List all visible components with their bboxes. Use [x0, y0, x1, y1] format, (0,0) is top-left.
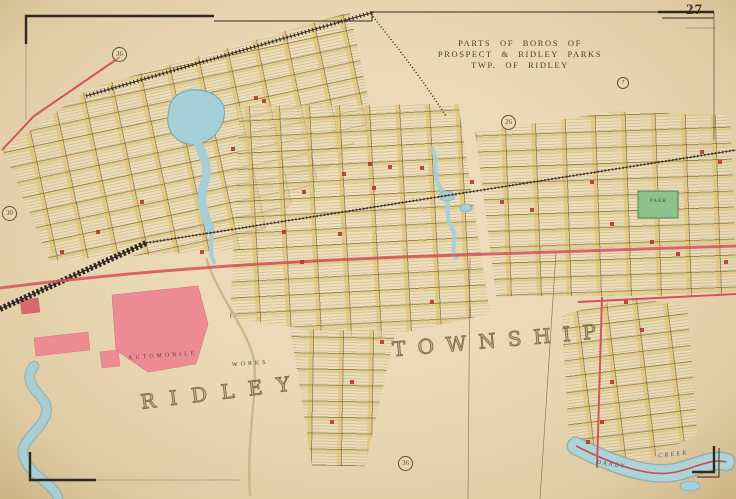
building-marker: [342, 172, 346, 176]
title-line-3: TWP. OF RIDLEY: [414, 60, 626, 71]
plate-number: 27: [686, 2, 703, 19]
building-marker: [640, 328, 644, 332]
building-marker: [254, 96, 258, 100]
building-marker: [368, 162, 372, 166]
building-marker: [380, 340, 384, 344]
building-marker: [650, 240, 654, 244]
building-marker: [600, 420, 604, 424]
building-marker: [420, 166, 424, 170]
factory-parcel: [100, 350, 120, 368]
plate-ref-circle: 36: [112, 47, 127, 62]
red-road-northwest: [2, 57, 120, 150]
chester-pike-red-road: [0, 246, 736, 288]
building-marker: [338, 232, 342, 236]
building-marker: [700, 150, 704, 154]
building-marker: [624, 300, 628, 304]
plate-ref-circle: 36: [398, 456, 413, 471]
building-marker: [200, 250, 204, 254]
building-marker: [231, 147, 235, 151]
railroad-upper: [86, 12, 374, 96]
park-label: PARK: [641, 199, 676, 204]
pond: [168, 90, 225, 144]
building-marker: [302, 190, 306, 194]
building-marker: [282, 230, 286, 234]
building-marker: [96, 230, 100, 234]
plate-ref-circle: 26: [501, 115, 516, 130]
section-line: [468, 258, 470, 499]
building-marker: [718, 160, 722, 164]
neatline-corner-top-left: [26, 16, 214, 44]
map-linework: [0, 0, 736, 499]
neatline-step: [372, 12, 658, 21]
factory-parcel: [34, 332, 90, 356]
building-marker: [610, 380, 614, 384]
building-marker: [470, 180, 474, 184]
section-line: [540, 252, 556, 499]
plate-ref-circle: 30: [2, 206, 17, 221]
building-marker: [300, 260, 304, 264]
marsh-pond: [460, 204, 472, 212]
map-title: PARTS OF BOROS OF PROSPECT & RIDLEY PARK…: [414, 38, 626, 71]
building-marker: [724, 260, 728, 264]
building-marker: [372, 186, 376, 190]
building-marker: [350, 380, 354, 384]
little-creek-center: [432, 148, 456, 258]
building-marker: [590, 180, 594, 184]
creek-from-pond: [198, 144, 210, 228]
small-pond: [680, 481, 700, 491]
atlas-sheet: 27 PARTS OF BOROS OF PROSPECT & RIDLEY P…: [0, 0, 736, 499]
building-marker: [262, 99, 266, 103]
building-marker: [60, 250, 64, 254]
building-marker: [140, 200, 144, 204]
building-marker: [388, 165, 392, 169]
building-marker: [676, 252, 680, 256]
building-marker: [430, 300, 434, 304]
title-line-2: PROSPECT & RIDLEY PARKS: [414, 49, 626, 60]
building-marker: [610, 222, 614, 226]
building-marker: [530, 208, 534, 212]
title-line-1: PARTS OF BOROS OF: [414, 38, 626, 49]
building-marker: [330, 420, 334, 424]
park-square: [638, 191, 678, 218]
plate-ref-circle: 7: [617, 77, 629, 89]
building-marker: [500, 200, 504, 204]
building-marker: [586, 440, 590, 444]
